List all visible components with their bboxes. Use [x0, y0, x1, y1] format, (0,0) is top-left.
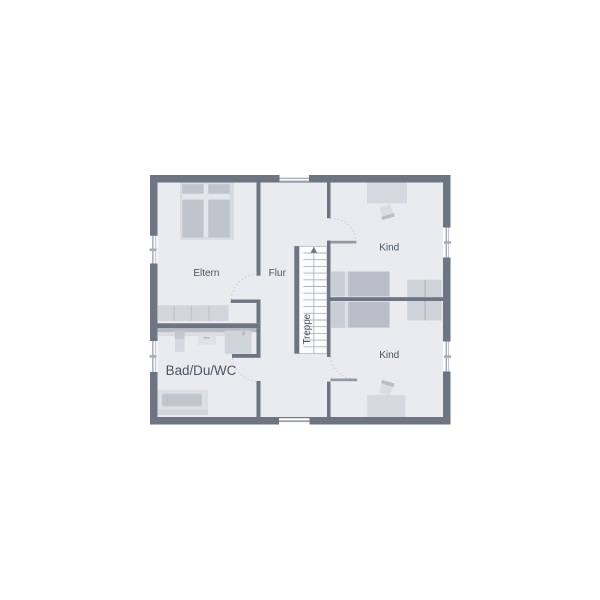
svg-text:Kind: Kind [379, 242, 399, 253]
svg-text:Kind: Kind [379, 350, 399, 361]
svg-text:Bad/Du/WC: Bad/Du/WC [166, 363, 237, 378]
svg-text:Flur: Flur [269, 268, 287, 279]
svg-text:Eltern: Eltern [193, 268, 219, 279]
svg-text:Treppe: Treppe [302, 313, 313, 344]
